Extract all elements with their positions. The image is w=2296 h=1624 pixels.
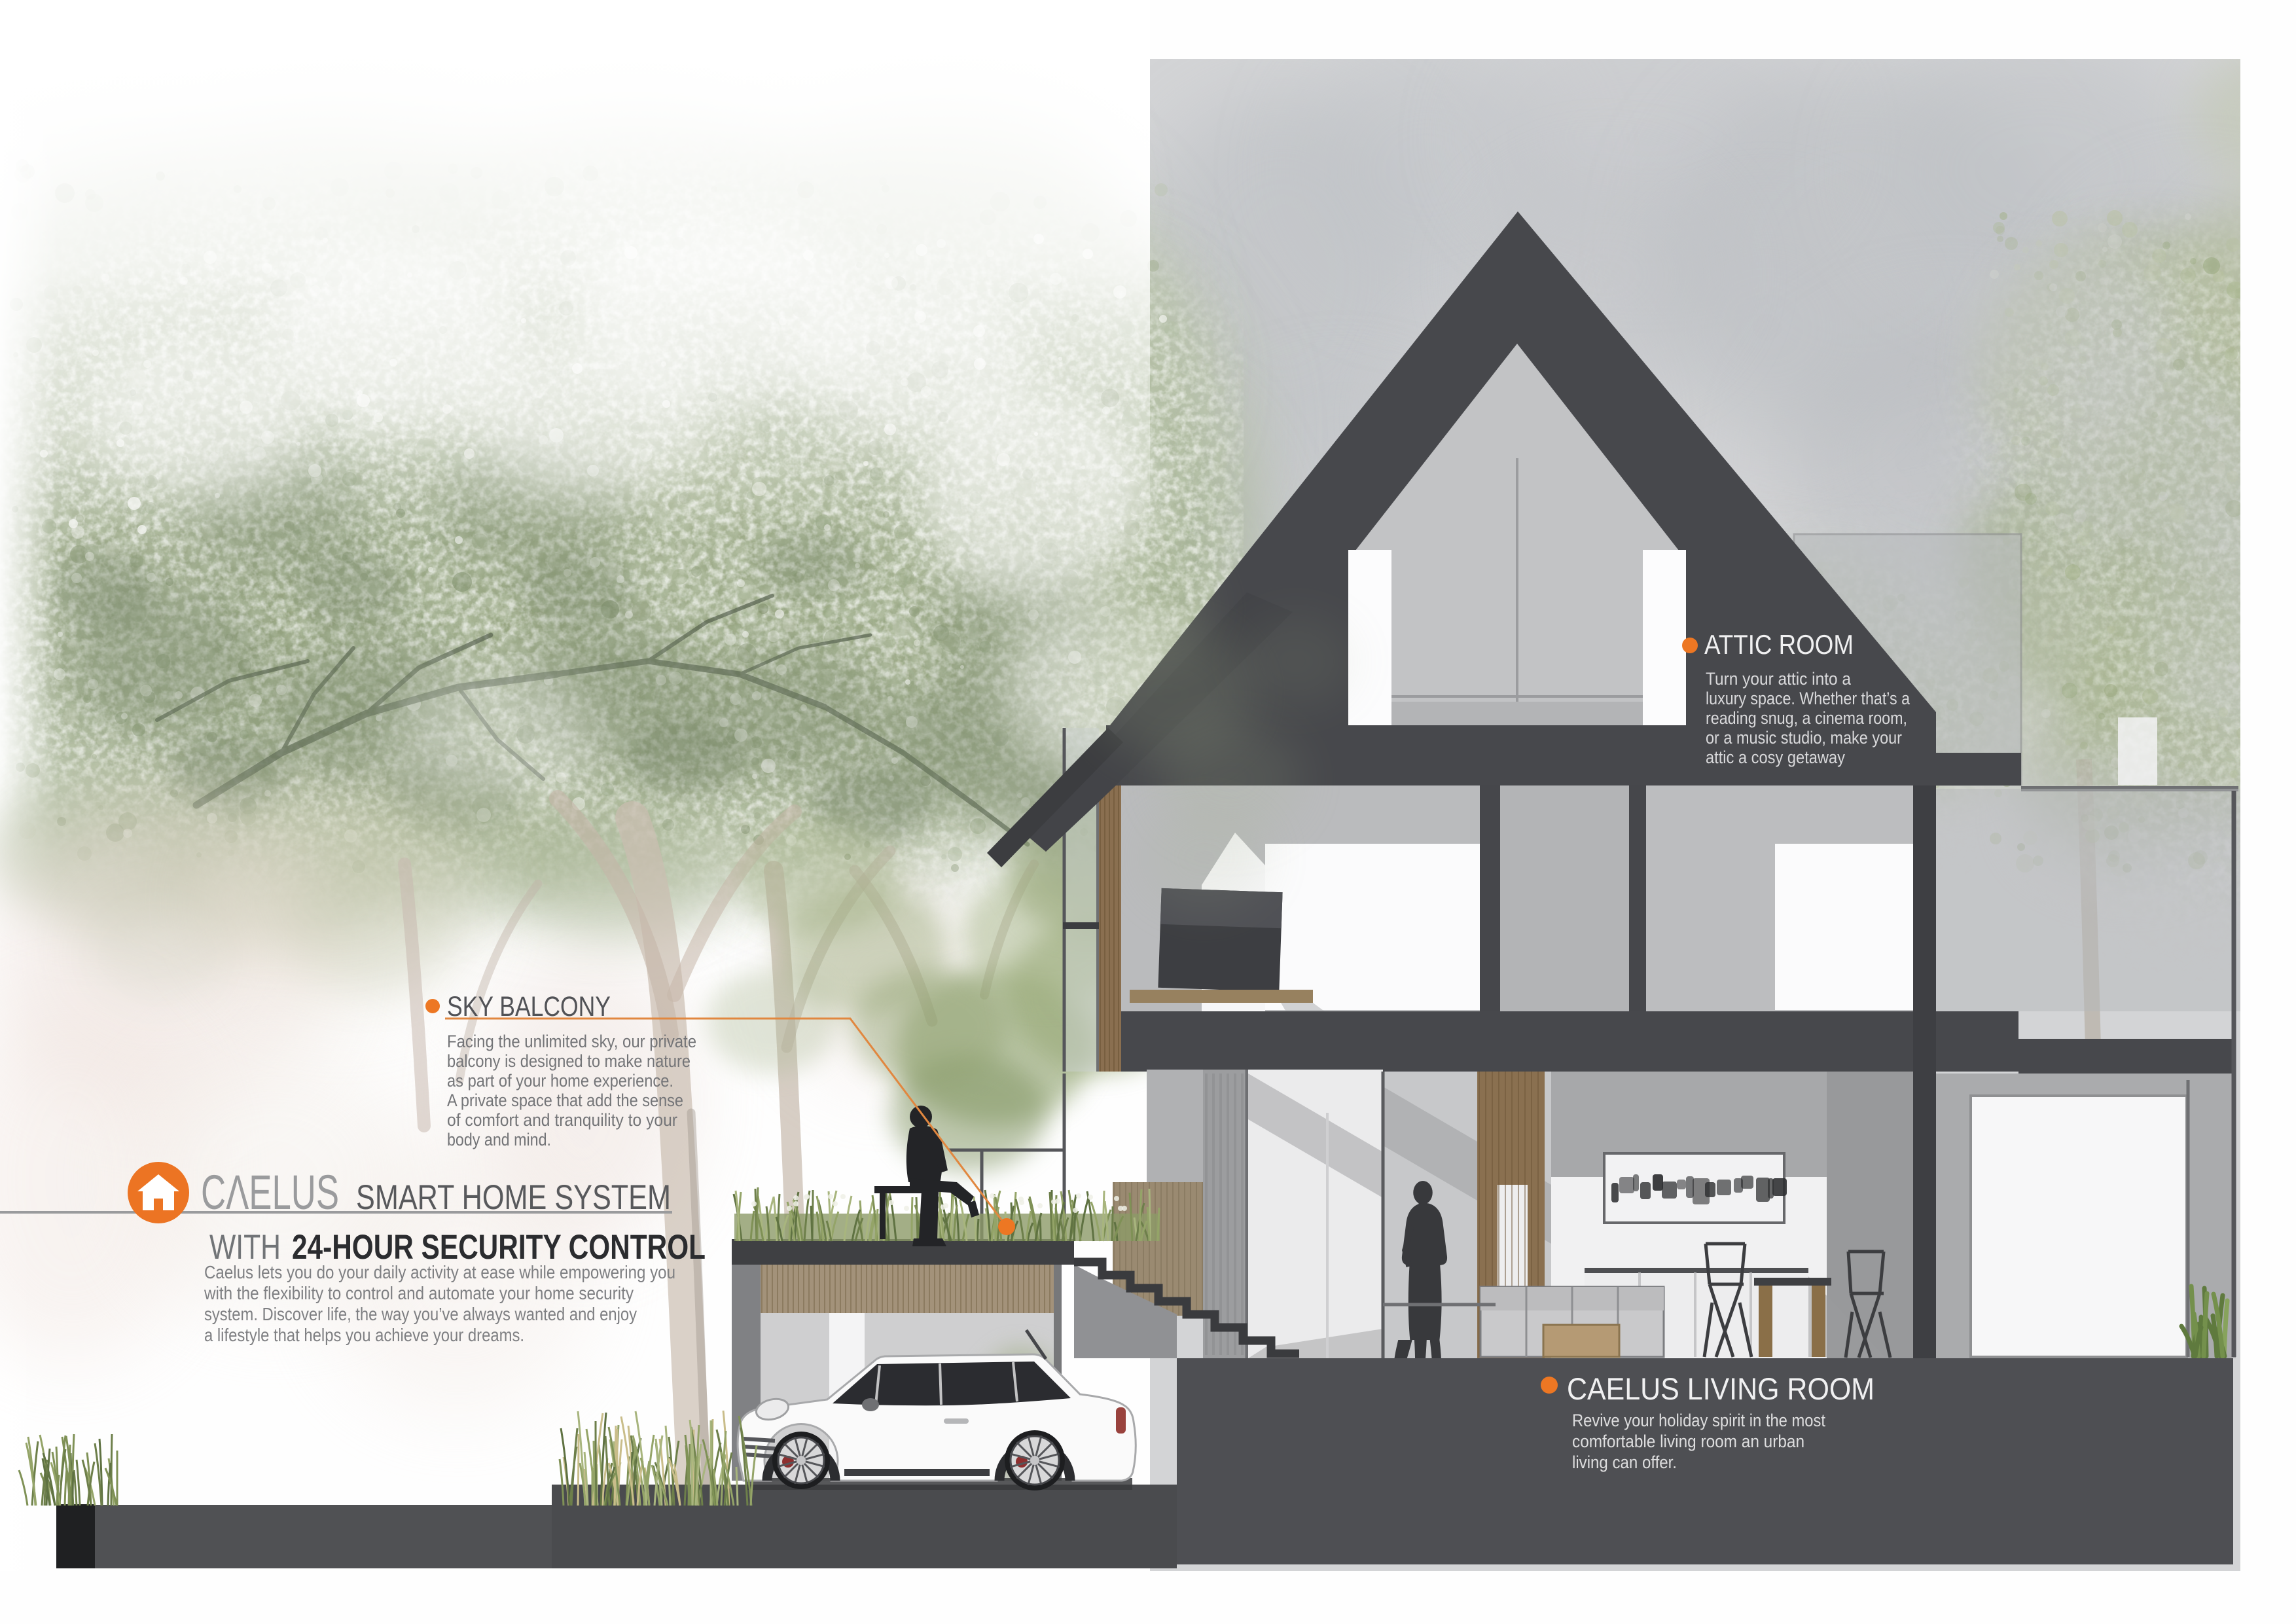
svg-text:comfortable living room an urb: comfortable living room an urban bbox=[1572, 1432, 1804, 1451]
svg-text:a lifestyle that helps you ach: a lifestyle that helps you achieve your … bbox=[204, 1325, 524, 1345]
svg-text:Caelus lets you do your daily: Caelus lets you do your daily activity a… bbox=[204, 1262, 675, 1282]
svg-text:or a music studio, make your: or a music studio, make your bbox=[1706, 728, 1902, 748]
svg-text:CΛELUS: CΛELUS bbox=[201, 1165, 339, 1219]
svg-text:as part of your home experienc: as part of your home experience. bbox=[447, 1071, 673, 1091]
svg-text:SKY BALCONY: SKY BALCONY bbox=[447, 991, 611, 1022]
svg-text:luxury space. Whether that’s a: luxury space. Whether that’s a bbox=[1706, 689, 1910, 708]
svg-text:ATTIC ROOM: ATTIC ROOM bbox=[1704, 629, 1854, 660]
svg-text:reading snug, a cinema room,: reading snug, a cinema room, bbox=[1706, 708, 1907, 728]
svg-text:Revive your holiday spirit in: Revive your holiday spirit in the most bbox=[1572, 1411, 1825, 1430]
svg-text:balcony is designed to make na: balcony is designed to make nature bbox=[447, 1051, 691, 1071]
svg-text:attic a cosy getaway: attic a cosy getaway bbox=[1706, 748, 1845, 767]
svg-text:WITH: WITH bbox=[209, 1228, 281, 1267]
svg-text:CAELUS LIVING ROOM: CAELUS LIVING ROOM bbox=[1567, 1371, 1874, 1406]
svg-text:living can offer.: living can offer. bbox=[1572, 1453, 1677, 1472]
svg-text:with the flexibility to contro: with the flexibility to control and auto… bbox=[204, 1283, 634, 1303]
svg-text:Turn your attic into a: Turn your attic into a bbox=[1706, 669, 1852, 689]
svg-text:SMART HOME SYSTEM: SMART HOME SYSTEM bbox=[356, 1178, 671, 1217]
svg-text:Facing the unlimited sky, our: Facing the unlimited sky, our private bbox=[447, 1032, 696, 1051]
svg-text:24-HOUR SECURITY CONTROL: 24-HOUR SECURITY CONTROL bbox=[292, 1228, 706, 1267]
svg-text:of comfort and tranquility to: of comfort and tranquility to your bbox=[447, 1110, 677, 1130]
svg-text:A private space that add the s: A private space that add the sense bbox=[447, 1091, 683, 1110]
svg-text:system. Discover life, the way: system. Discover life, the way you’ve al… bbox=[204, 1304, 637, 1324]
svg-text:body and mind.: body and mind. bbox=[447, 1130, 551, 1149]
